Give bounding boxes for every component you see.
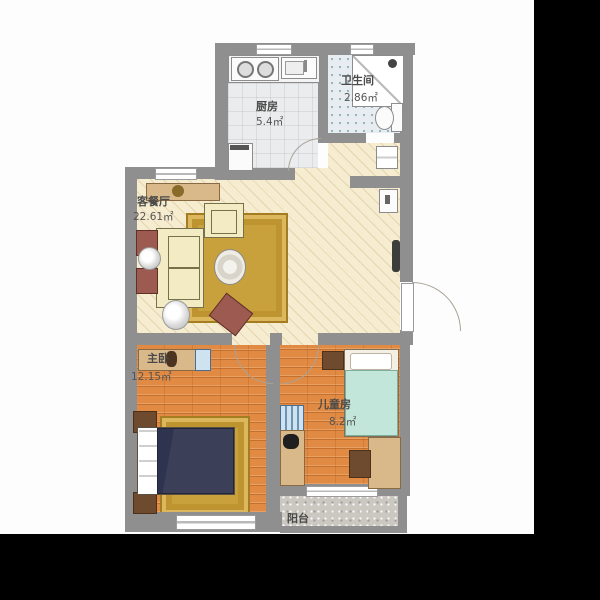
entry-door-swing-arc <box>412 282 461 331</box>
floorplan-image: 厨房 5.4㎡ 卫生间 2.86㎡ 客餐厅 22.61㎡ 主卧 12.15㎡ 儿… <box>0 0 534 534</box>
intercom-button <box>385 195 390 204</box>
letterbox-right <box>534 0 600 600</box>
letterbox-bottom <box>0 534 600 600</box>
shower-head-icon <box>388 59 397 68</box>
side-table <box>138 247 161 270</box>
stove-burner-right <box>257 61 274 78</box>
kids-nightstand <box>322 351 344 370</box>
master-bedroom-area: 12.15㎡ <box>131 372 172 383</box>
kids-wardrobe-clothes <box>283 434 299 449</box>
coat-rack <box>392 240 400 272</box>
kids-desk <box>368 437 401 489</box>
master-bed-pillows <box>139 430 158 490</box>
washing-machine-panel <box>230 145 249 150</box>
master-bedroom-label: 主卧 <box>147 353 169 364</box>
toilet-bowl <box>375 106 394 130</box>
stove-burner-left <box>237 61 254 78</box>
living-room-window <box>155 168 197 180</box>
balcony-label: 阳台 <box>287 513 309 524</box>
wall-balcony-bottom <box>280 526 407 533</box>
kids-desk-chair <box>349 450 371 478</box>
living-room-label: 客餐厅 <box>137 196 170 207</box>
kids-radiator <box>280 405 304 431</box>
living-room-area: 22.61㎡ <box>133 212 174 223</box>
electrical-panel <box>376 146 398 169</box>
kitchen-window <box>256 44 292 55</box>
wall-mid-left <box>125 333 232 345</box>
wall-kids-right <box>400 345 410 490</box>
wall-mid-right <box>318 333 413 345</box>
wall-top <box>215 43 415 55</box>
kids-room-label: 儿童房 <box>318 399 351 410</box>
coffee-table <box>214 249 246 285</box>
master-nightstand-bottom <box>133 492 157 514</box>
kids-bed-pillow <box>350 353 392 370</box>
kitchen-sink-basin <box>285 61 304 75</box>
wall-bath-bottom-left <box>328 133 366 143</box>
wall-bath-bottom-right <box>394 133 403 143</box>
armchair-top-seat <box>211 210 237 234</box>
kitchen-label: 厨房 <box>256 101 278 112</box>
sofa-seat-top <box>168 236 200 268</box>
sofa-seat-bottom <box>168 268 200 300</box>
bathroom-window <box>350 44 374 55</box>
kitchen-area: 5.4㎡ <box>256 117 283 128</box>
sideboard-decor <box>172 185 184 197</box>
bathroom-label: 卫生间 <box>341 75 374 86</box>
wall-kitchen-left <box>215 43 228 180</box>
wall-mid-post <box>270 333 282 345</box>
master-tv <box>195 349 211 371</box>
wall-right-mid <box>400 182 413 282</box>
master-bed-blanket <box>157 428 234 494</box>
kitchen-faucet <box>304 60 307 72</box>
bathroom-area: 2.86㎡ <box>344 93 378 104</box>
master-bedroom-window <box>176 515 256 530</box>
plant-pot <box>162 300 190 330</box>
kids-room-area: 8.2㎡ <box>329 417 356 428</box>
red-armchair-lower <box>136 268 158 294</box>
